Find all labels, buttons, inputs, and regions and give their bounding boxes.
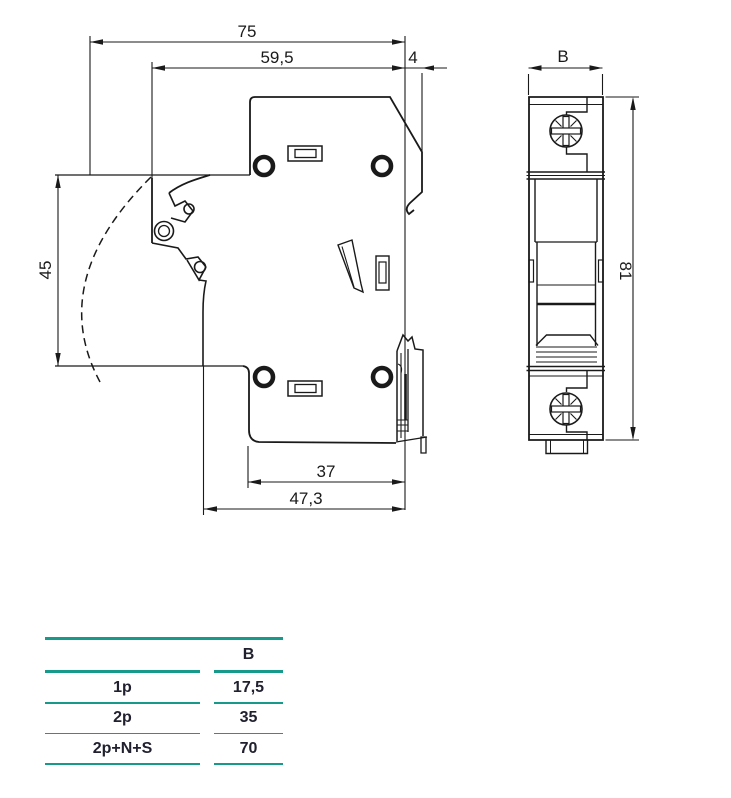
carrier-handle	[536, 335, 598, 346]
table-header-row: B	[45, 640, 283, 670]
side-contact-slots	[529, 260, 603, 282]
contact-blade	[338, 240, 363, 292]
dim-label-total-width: 75	[238, 22, 257, 41]
row-label: 1p	[45, 679, 200, 697]
spec-table: B 1p 17,5 2p 35 2p+N+S 70	[45, 637, 283, 765]
table-rule-header	[45, 670, 283, 673]
table-rule	[45, 702, 283, 704]
screw-head-bottom-icon	[550, 393, 582, 425]
table-rule-top	[45, 637, 283, 640]
technical-drawing: 75 59,5 4 45 37 47,	[0, 0, 731, 625]
page: { "drawing": { "side_view": { "dims": { …	[0, 0, 731, 798]
dim-label-base-width: 37	[317, 462, 336, 481]
dim-label-front-height: 81	[616, 262, 635, 281]
terminal-slot-top	[288, 146, 322, 161]
table-row: 1p 17,5	[45, 673, 283, 702]
dim-base-width: 37	[248, 462, 405, 485]
bottom-foot	[546, 440, 588, 454]
row-value: 17,5	[214, 679, 283, 697]
table-header-col2: B	[214, 646, 283, 664]
front-view	[527, 97, 606, 454]
mounting-holes	[255, 157, 391, 386]
lever-pin-bottom	[195, 262, 206, 273]
lever-axle-outer	[155, 222, 174, 241]
row-value: 35	[214, 709, 283, 727]
dim-label-lever-zone-height: 45	[36, 261, 55, 280]
dim-lever-zone-height: 45	[36, 175, 61, 366]
row-value: 70	[214, 740, 283, 758]
dim-label-rail-depth: 4	[408, 48, 417, 67]
rib-lines	[536, 347, 597, 362]
side-body-upper-outline	[250, 97, 422, 214]
dim-front-height: 81	[616, 97, 636, 440]
side-view	[55, 97, 427, 453]
dimensions: 75 59,5 4 45 37 47,	[36, 22, 639, 515]
table-row: 2p+N+S 70	[45, 734, 283, 763]
dim-body-width: 59,5 4	[152, 48, 447, 71]
table-rule	[45, 733, 283, 735]
small-window	[376, 256, 389, 290]
dim-label-body-width: 59,5	[260, 48, 293, 67]
dim-base-total-width: 47,3	[204, 489, 405, 512]
dimensional-drawing-svg: 75 59,5 4 45 37 47,	[0, 0, 731, 620]
dim-total-width: 75	[90, 22, 405, 45]
row-label: 2p	[45, 709, 200, 727]
terminal-slot-bottom	[288, 381, 322, 396]
dim-label-front-width: B	[557, 47, 568, 66]
din-rail-clip	[396, 335, 427, 453]
lever-axle-inner	[159, 226, 170, 237]
table-row: 2p 35	[45, 704, 283, 733]
dim-front-width: B	[529, 47, 603, 71]
lever-swing-arc	[82, 177, 151, 382]
toggle-lever	[82, 175, 210, 382]
screw-head-top-icon	[550, 115, 582, 147]
row-label: 2p+N+S	[45, 740, 200, 758]
table-rule-bottom	[45, 763, 283, 765]
dim-label-base-total-width: 47,3	[289, 489, 322, 508]
